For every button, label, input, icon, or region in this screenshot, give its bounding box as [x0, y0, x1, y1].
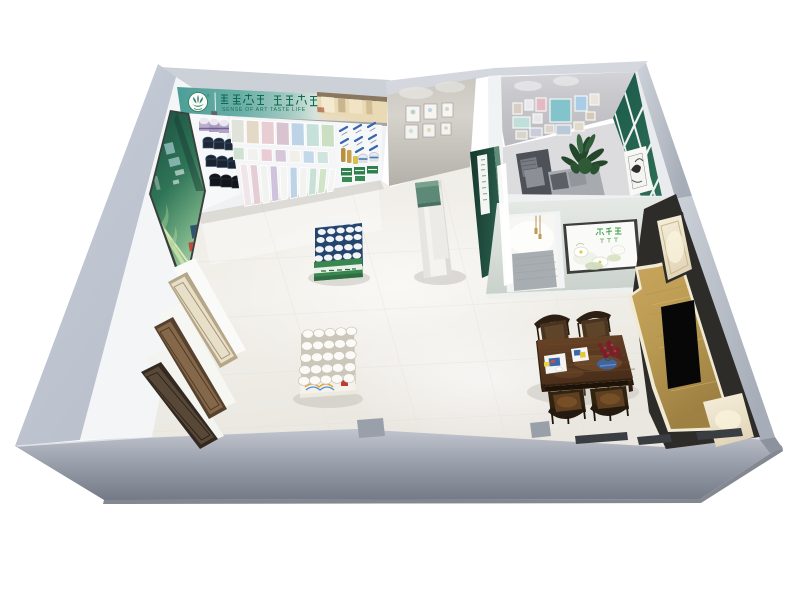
svg-text:®: ® [207, 94, 210, 98]
svg-text:SENSE OF ART TASTE LIFE: SENSE OF ART TASTE LIFE [222, 107, 306, 113]
